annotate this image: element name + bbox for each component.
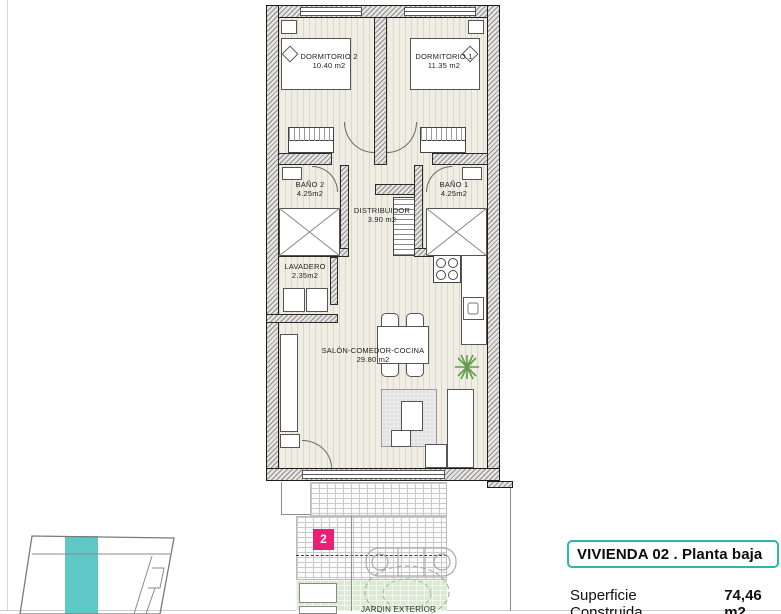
wall-under-lavadero [266, 314, 338, 323]
unit-number: 2 [320, 532, 327, 546]
window-dormitorio1 [404, 7, 476, 16]
chair-icon [406, 363, 424, 377]
shower-icon-bano2 [279, 208, 340, 256]
keyplan-highlight [65, 536, 98, 614]
tall-cabinet [280, 334, 298, 432]
surface-label: Superficie Construida [570, 587, 696, 614]
room-name: BAÑO 1 [440, 180, 469, 189]
room-label-dormitorio1: DORMITORIO 1 11.35 m2 [408, 52, 480, 71]
cabinet [280, 434, 300, 448]
room-area: 4.25m2 [282, 189, 338, 198]
wall-right [487, 5, 500, 481]
plot-right-line [510, 482, 511, 611]
room-label-salon: SALÓN-COMEDOR-COCINA 29.80 m2 [316, 346, 430, 365]
room-name: JARDIN EXTERIOR [361, 605, 436, 614]
room-name: SALÓN-COMEDOR-COCINA [322, 346, 425, 355]
toilet-icon-bano2 [282, 167, 302, 180]
terrace-paving-upper [310, 482, 447, 516]
wall-left [266, 5, 279, 481]
title-box: VIVIENDA 02 . Planta baja [567, 540, 779, 568]
shower-icon-bano1 [426, 208, 487, 256]
planter-box [299, 606, 337, 614]
armchair-icon [425, 444, 447, 468]
washer-icon [283, 288, 305, 312]
page-left-border [7, 0, 8, 611]
nightstand-icon-dorm2 [281, 20, 297, 34]
room-name: DORMITORIO 1 [415, 52, 472, 61]
wall-stub-right [487, 481, 513, 488]
room-area: 29.80 m2 [316, 355, 430, 364]
plant-icon [452, 352, 482, 382]
wardrobe-icon-dorm2 [288, 127, 334, 153]
wall-bedroom-divider [374, 17, 387, 165]
terrace-divider-line [351, 516, 352, 611]
window-dormitorio2 [300, 7, 362, 16]
wall-stub-distribuidor [375, 184, 415, 195]
room-label-dormitorio2: DORMITORIO 2 10.40 m2 [293, 52, 365, 71]
sink-icon [463, 297, 484, 320]
dryer-icon [306, 288, 328, 312]
keyplan [12, 528, 182, 614]
room-name: DORMITORIO 2 [300, 52, 357, 61]
chair-icon [381, 313, 399, 327]
coffee-table-icon [401, 401, 423, 431]
room-name: LAVADERO [284, 262, 325, 271]
side-table-icon [391, 430, 411, 447]
room-area: 2.35m2 [274, 271, 336, 280]
plot-left-corner-line [281, 514, 310, 515]
room-area: 11.35 m2 [408, 61, 480, 70]
sliding-door [302, 470, 445, 479]
planter-box [299, 583, 337, 603]
floor-plan-page: DORMITORIO 2 10.40 m2 DORMITORIO 1 11.35… [0, 0, 781, 614]
room-area: 4.25m2 [426, 189, 482, 198]
surface-value: 74,46 m2 [724, 587, 780, 614]
chair-icon [381, 363, 399, 377]
room-area: 3.90 m2 [347, 215, 417, 224]
room-label-bano2: BAÑO 2 4.25m2 [282, 180, 338, 199]
room-name: BAÑO 2 [296, 180, 325, 189]
garden-label: JARDIN EXTERIOR [346, 605, 451, 614]
room-area: 10.40 m2 [293, 61, 365, 70]
surface-line: Superficie Construida 74,46 m2 [570, 587, 780, 614]
stove-icon [433, 255, 461, 283]
unit-number-badge: 2 [313, 529, 334, 550]
room-label-distribuidor: DISTRIBUIDOR 3.90 m2 [347, 206, 417, 225]
plan-title: VIVIENDA 02 . Planta baja [577, 546, 762, 563]
toilet-icon-bano1 [462, 167, 482, 180]
wall-under-dorm1 [432, 153, 488, 165]
nightstand-icon-dorm1 [468, 20, 484, 34]
room-label-lavadero: LAVADERO 2.35m2 [274, 262, 336, 281]
wall-under-dorm2 [278, 153, 332, 165]
wardrobe-icon-dorm1 [420, 127, 466, 153]
chair-icon [406, 313, 424, 327]
plot-left-line [281, 482, 282, 515]
sofa-icon [447, 389, 474, 468]
room-label-bano1: BAÑO 1 4.25m2 [426, 180, 482, 199]
room-name: DISTRIBUIDOR [354, 206, 410, 215]
